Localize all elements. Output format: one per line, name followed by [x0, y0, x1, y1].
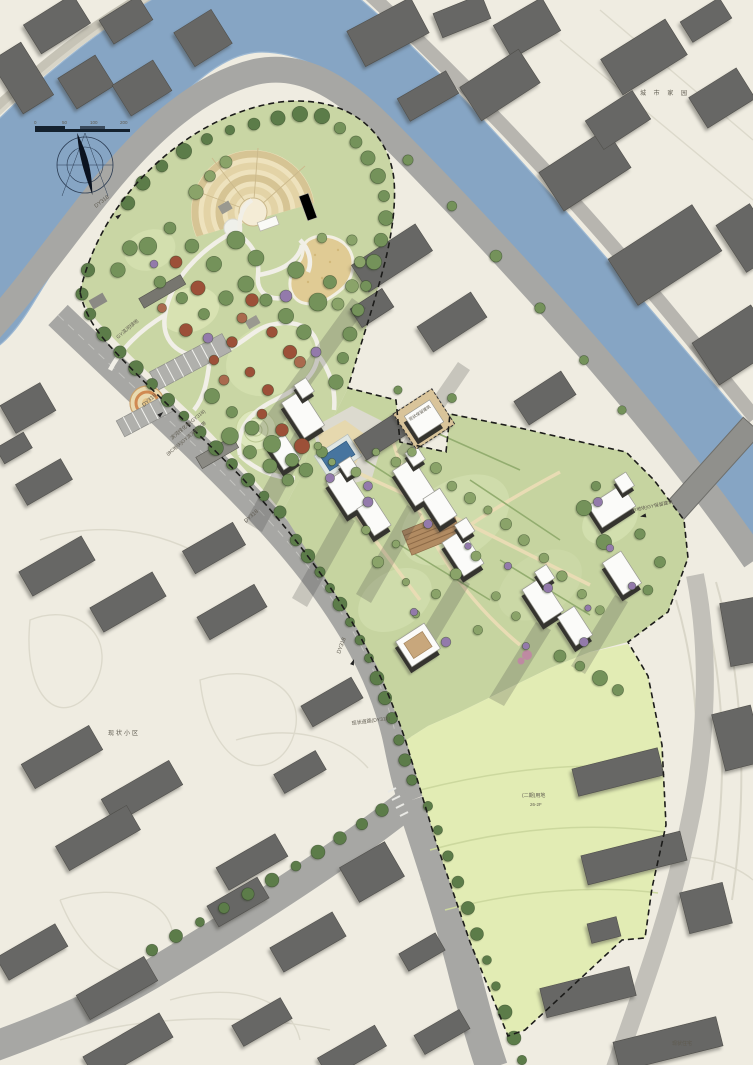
tree [517, 1055, 526, 1064]
tree [263, 435, 280, 452]
tree [504, 562, 512, 570]
tree [317, 233, 327, 243]
tree [363, 481, 372, 490]
tree [267, 327, 278, 338]
tree [592, 670, 607, 685]
tree [285, 453, 298, 466]
tree [334, 122, 346, 134]
tree [596, 606, 605, 615]
tree [219, 291, 234, 306]
tree [81, 263, 95, 277]
tree [292, 106, 307, 121]
tree [314, 108, 329, 123]
tree [243, 445, 256, 458]
tree [447, 481, 457, 491]
tree [201, 133, 212, 144]
tree [473, 625, 482, 634]
tree [276, 424, 289, 437]
tree [366, 254, 381, 269]
tree [146, 378, 157, 389]
tree [245, 421, 259, 435]
tree [325, 473, 334, 482]
tree [150, 260, 158, 268]
tree [280, 290, 292, 302]
tree [170, 256, 182, 268]
tree [220, 156, 232, 168]
tree [176, 292, 187, 303]
scale-label: 50 [62, 120, 68, 125]
tree [394, 735, 405, 746]
tree [399, 754, 412, 767]
tree [450, 568, 461, 579]
tree [394, 386, 402, 394]
tree [262, 384, 273, 395]
tree [576, 500, 591, 515]
field-label-line2: 26-2F [530, 802, 542, 807]
tree [297, 325, 312, 340]
tree [483, 956, 492, 965]
tree [372, 556, 384, 568]
tree [447, 393, 456, 402]
tree [157, 303, 166, 312]
tree [452, 876, 464, 888]
tree [585, 605, 591, 611]
tree [343, 327, 357, 341]
tree [465, 543, 472, 550]
tree [557, 571, 568, 582]
tree [361, 281, 372, 292]
tree [84, 308, 96, 320]
tree [189, 185, 204, 200]
tree [248, 118, 260, 130]
tree [554, 650, 566, 662]
tree [146, 944, 158, 956]
tree [500, 518, 511, 529]
tree [291, 861, 301, 871]
tree [370, 671, 384, 685]
tree [492, 592, 501, 601]
tree [431, 589, 441, 599]
tree [246, 294, 259, 307]
tree [591, 481, 601, 491]
tree [484, 506, 492, 514]
tree [635, 529, 646, 540]
tree [579, 355, 588, 364]
tree [579, 637, 588, 646]
tree [164, 222, 176, 234]
tree [299, 463, 313, 477]
tree [471, 551, 481, 561]
estate-label-northeast: 城 市 家 园 [640, 89, 690, 97]
tree [263, 459, 277, 473]
site-plan-image: 0 50 100 200 DY318 DY318 DY318 DY318 GY滨… [0, 0, 753, 1065]
tree [185, 239, 199, 253]
tree [402, 578, 409, 585]
tree [346, 280, 359, 293]
tree [490, 250, 502, 262]
tree [376, 804, 389, 817]
tree [242, 888, 254, 900]
tree [374, 233, 388, 247]
tree [226, 406, 237, 417]
tree [209, 355, 219, 365]
tree [76, 288, 88, 300]
tree [309, 293, 327, 311]
tree [283, 345, 297, 359]
tree [539, 553, 549, 563]
tree [441, 637, 451, 647]
tree [350, 136, 362, 148]
tree [354, 256, 365, 267]
tree [154, 276, 166, 288]
tree [257, 409, 267, 419]
tree [352, 304, 364, 316]
tree [205, 171, 216, 182]
tree [219, 375, 229, 385]
tree [618, 406, 627, 415]
tree [121, 196, 135, 210]
tree [577, 589, 586, 598]
tree [204, 388, 219, 403]
tree [403, 155, 413, 165]
tree [259, 491, 269, 501]
tree [337, 352, 348, 363]
tree [535, 303, 546, 314]
tree [593, 497, 602, 506]
tree [328, 458, 335, 465]
tree [356, 818, 367, 829]
scale-label: 200 [120, 120, 128, 125]
tree [443, 851, 454, 862]
tree [363, 497, 373, 507]
tree [378, 190, 389, 201]
tree [379, 211, 394, 226]
tree [222, 428, 239, 445]
estate-label-west: 现状小区 [108, 729, 140, 737]
tree [111, 263, 126, 278]
tree [628, 582, 636, 590]
tree [471, 928, 484, 941]
tree [278, 308, 293, 323]
tree [347, 235, 357, 245]
tree [372, 448, 379, 455]
tree [332, 298, 344, 310]
tree [314, 442, 322, 450]
tree [206, 256, 221, 271]
tree [294, 438, 309, 453]
tree [271, 111, 285, 125]
tree [543, 583, 553, 593]
tree [361, 151, 375, 165]
tree [424, 520, 433, 529]
tree [430, 462, 441, 473]
tree [362, 526, 371, 535]
tree [245, 367, 255, 377]
tree [408, 448, 417, 457]
tree [139, 237, 157, 255]
tree [334, 832, 347, 845]
tree [238, 276, 254, 292]
tree [433, 825, 442, 834]
tree [519, 535, 530, 546]
tree [265, 873, 279, 887]
tree [237, 313, 247, 323]
tree [461, 901, 474, 914]
tree [643, 585, 653, 595]
tree [407, 775, 418, 786]
tree [447, 201, 457, 211]
field-label-line1: (二期)用地 [522, 792, 545, 799]
tree [392, 540, 400, 548]
tree [351, 467, 361, 477]
tree [260, 294, 272, 306]
tree [575, 661, 585, 671]
tree [512, 612, 521, 621]
estate-label-southeast: 现状住宅 [672, 1040, 692, 1047]
tree [311, 845, 325, 859]
tree [323, 275, 336, 288]
tree [248, 250, 264, 266]
tree [203, 333, 213, 343]
tree [294, 356, 305, 367]
tree [225, 125, 235, 135]
tree [180, 324, 193, 337]
tree [282, 474, 294, 486]
tree [370, 168, 385, 183]
tree [195, 917, 204, 926]
tree [464, 492, 475, 503]
scale-label: 100 [90, 120, 98, 125]
tree [227, 337, 238, 348]
tree [288, 262, 305, 279]
tree [311, 347, 321, 357]
tree [227, 231, 245, 249]
tree [191, 281, 205, 295]
tree [123, 241, 138, 256]
tree [198, 308, 209, 319]
tree [329, 375, 344, 390]
tree [522, 642, 529, 649]
tree [391, 457, 401, 467]
tree [219, 903, 230, 914]
tree [169, 929, 182, 942]
tree [612, 684, 623, 695]
tree [606, 544, 614, 552]
tree [492, 982, 501, 991]
site-plan: 0 50 100 200 DY318 DY318 DY318 DY318 GY滨… [0, 0, 753, 1065]
tree [654, 556, 665, 567]
tree [410, 608, 418, 616]
tree [209, 441, 224, 456]
